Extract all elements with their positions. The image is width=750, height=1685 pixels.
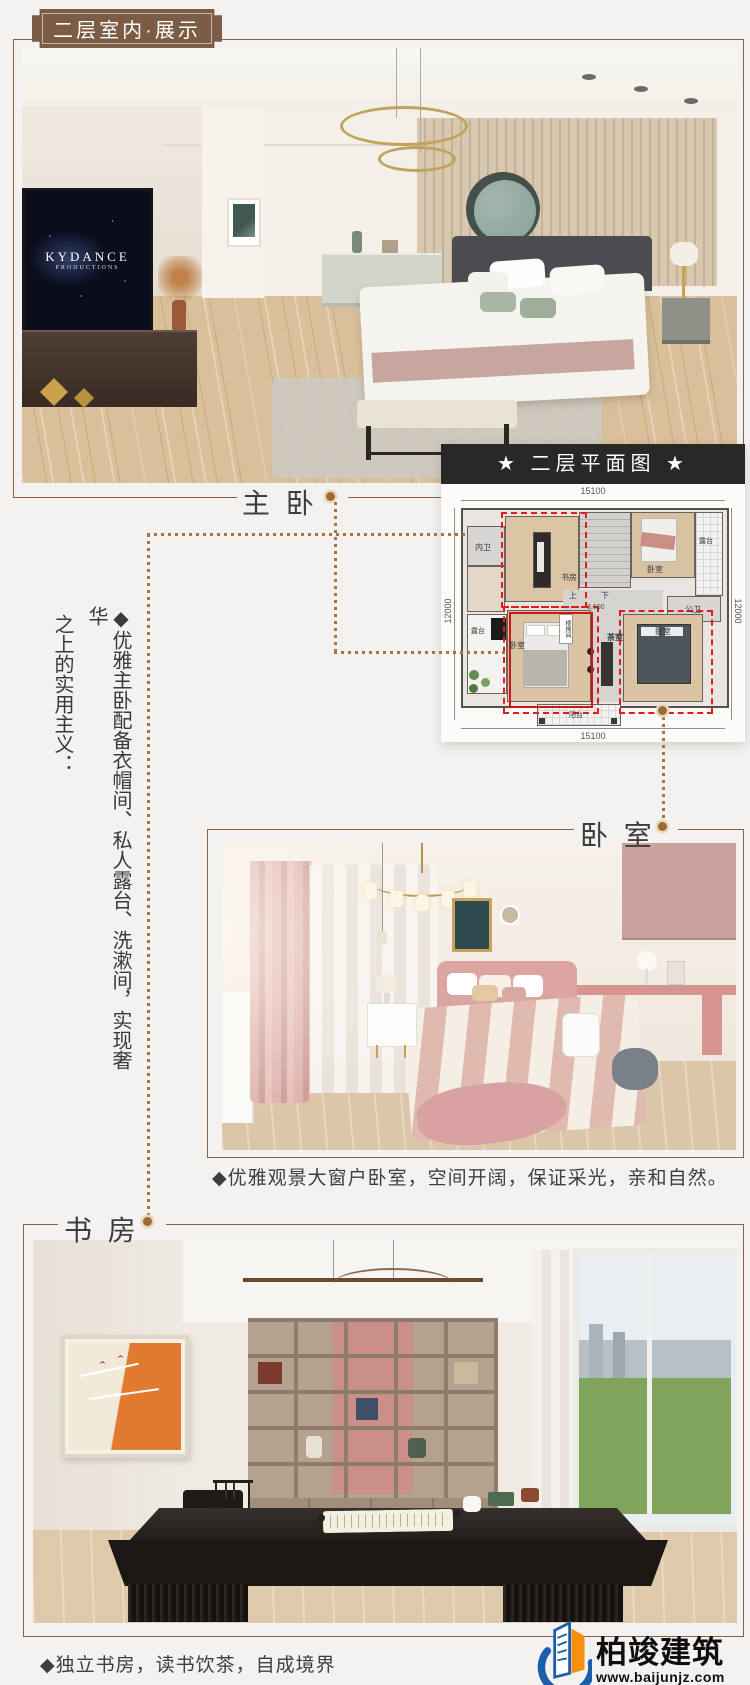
connector-study-horizontal (147, 533, 469, 536)
wall-art (452, 898, 492, 952)
shelving-unit (248, 1318, 498, 1498)
stair-down-label: 下 (601, 590, 609, 601)
wall-art-small (227, 198, 261, 247)
window-mullion (647, 1254, 652, 1514)
pendant-wire (382, 843, 383, 933)
window-tower (613, 1332, 625, 1378)
plant (481, 678, 490, 687)
connector-bedroom-vertical (662, 717, 665, 823)
light-wire (333, 1240, 334, 1278)
stairwell-tag: 楼梯间 (559, 614, 573, 644)
wall-art-canvas (233, 204, 255, 237)
pillow-sage (480, 292, 516, 312)
scroll-end (453, 1510, 461, 1518)
room-label-study: 书房 (561, 572, 577, 583)
dim-left: 12000 (443, 591, 453, 631)
stair-dim-label: 3,600 (587, 604, 605, 611)
room-label-master: 卧室 (509, 640, 525, 651)
side-note-line1: ◆优雅主卧配备衣帽间、私人露台、洗漱间，实现奢华 (84, 606, 132, 1086)
ceiling (22, 48, 737, 108)
connector-dot-bedroom (658, 822, 667, 831)
dim-right: 12000 (733, 591, 743, 631)
pouf (612, 1048, 658, 1090)
pillow-sage (520, 298, 556, 318)
side-note-line2: 之上的实用主义： (50, 614, 74, 814)
section-badge: 二层室内·展示 (32, 9, 222, 48)
scroll-end (317, 1514, 325, 1522)
hallway-left (467, 566, 505, 612)
master-frame-line-left (13, 497, 237, 498)
tea-box (488, 1492, 514, 1506)
shelf-vase (408, 1438, 426, 1458)
dried-flowers (158, 256, 202, 304)
desk-lamp-shade (637, 951, 657, 971)
pillow-gold (472, 985, 498, 1001)
round-mirror (474, 180, 536, 242)
desk-ornament (521, 1488, 539, 1502)
bedroom-frame-line-left (207, 829, 574, 830)
room-label-bed-top: 卧室 (647, 564, 663, 575)
floor-plan-panel: ★ 二层平面图 ★ 15100 12000 12000 15100 内卫 书房 (441, 444, 745, 742)
connector-dot-plan (658, 706, 667, 715)
lamp-shade (376, 975, 398, 993)
vanity-top (577, 985, 736, 995)
connector-dot-study (143, 1217, 152, 1226)
pillow (549, 264, 606, 296)
desk-lamp-stem (645, 969, 648, 985)
vanity-support (702, 995, 722, 1055)
master-bedroom-photo: KYDANCE PRODUCTIONS (22, 48, 737, 483)
sideboard-vase (352, 231, 362, 253)
chandelier-bulb (464, 881, 477, 897)
tea-pot (463, 1496, 481, 1512)
room-label-bed-right: 卧室 (655, 626, 671, 637)
lamp-stem (682, 262, 685, 298)
ring-chandelier (340, 106, 468, 146)
connector-master-horizontal (334, 651, 509, 654)
label-study: 书 房 (64, 1209, 140, 1249)
dim-right-line (731, 508, 732, 720)
chandelier-bulb (364, 883, 377, 899)
downlight (684, 98, 698, 104)
floor-plan-drawing: 内卫 书房 上 下 3,600 楼梯间 卧室 露台 公卫 (461, 508, 729, 708)
bedroom-frame-line-right (678, 829, 743, 830)
study-caption: ◆独立书房，读书饮茶，自成境界 (40, 1650, 336, 1677)
sideboard-decor (382, 240, 398, 253)
pink-cabinetry (622, 843, 736, 940)
dim-bottom: 15100 (441, 731, 745, 741)
brush-rack-post (215, 1480, 217, 1508)
study-frame-line-left (23, 1224, 58, 1225)
ring-chandelier-small (378, 146, 456, 172)
connector-dot-master (326, 492, 335, 501)
vase (172, 300, 186, 330)
company-logo: 柏竣建筑 www.baijunjz.com (536, 1612, 748, 1685)
terrace-left-label: 露台 (471, 626, 485, 636)
balcony-post (611, 718, 617, 724)
chandelier-arms (372, 869, 472, 897)
pendant-bulb (377, 931, 387, 945)
logo-icon (536, 1615, 592, 1685)
page: 二层室内·展示 KYDANCE PRODUCTIONS (0, 0, 750, 1685)
lamp-shade (670, 242, 698, 266)
bench-cushion (357, 400, 517, 428)
window-lawn (579, 1378, 731, 1514)
tv-text-line2: PRODUCTIONS (25, 265, 150, 271)
nightstand (367, 1003, 417, 1047)
plant (469, 684, 478, 693)
nightstand (662, 298, 710, 344)
calligraphy-scroll (323, 1509, 453, 1533)
chair-back (562, 1013, 600, 1057)
nightstand-leg (376, 1045, 378, 1058)
round-portrait (500, 905, 520, 925)
balcony-label: 阳台 (569, 710, 583, 720)
books (454, 1362, 478, 1384)
room-label-tea: 茶室 (607, 632, 623, 643)
brush (233, 1483, 235, 1499)
nightstand-leg (404, 1045, 406, 1058)
art-canvas (69, 1343, 181, 1450)
logo-text: 柏竣建筑 www.baijunjz.com (596, 1637, 725, 1685)
light-arc-wire (333, 1268, 453, 1300)
dim-top: 15100 (441, 486, 745, 496)
connector-study-vertical (147, 534, 150, 1222)
tea-table (601, 642, 613, 686)
room-label-inner-bath: 内卫 (475, 542, 491, 553)
bedroom-photo (222, 843, 736, 1150)
window-tower (589, 1324, 603, 1378)
chandelier-bulb (416, 895, 429, 911)
dim-left-line (454, 508, 455, 720)
window (573, 1248, 737, 1532)
terrace-right (695, 512, 723, 596)
terrace-right-label: 露台 (699, 536, 713, 546)
plant (469, 670, 479, 680)
room-label-public-bath: 公卫 (685, 604, 701, 615)
brush (225, 1483, 227, 1499)
connector-master-vertical (334, 502, 337, 654)
highlight-master-solid (509, 612, 593, 708)
desk-front (108, 1540, 668, 1586)
desk-cabinet-left (128, 1584, 248, 1622)
tv-screen: KYDANCE PRODUCTIONS (22, 188, 153, 344)
downlight (634, 86, 648, 92)
downlight (582, 74, 596, 80)
study-frame-line-right (166, 1224, 743, 1225)
bedroom-caption: ◆优雅观景大窗户卧室，空间开阔，保证采光，亲和自然。 (212, 1163, 742, 1190)
books (356, 1398, 378, 1420)
chandelier-bulb (390, 891, 403, 907)
label-bedroom: 卧 室 (580, 814, 656, 854)
stair-up-label: 上 (569, 590, 577, 601)
brush-rack-post (248, 1480, 250, 1508)
vanity-frame (667, 961, 685, 985)
logo-company-name: 柏竣建筑 (596, 1637, 725, 1669)
mountain-art (61, 1335, 189, 1458)
study-photo (33, 1240, 737, 1623)
floor-plan-title: ★ 二层平面图 ★ (441, 444, 745, 484)
tv-text-line1: KYDANCE (25, 249, 150, 265)
dim-top-line (461, 500, 725, 501)
shelf-vase (306, 1436, 322, 1458)
label-master-bedroom: 主 卧 (242, 482, 318, 522)
logo-website: www.baijunjz.com (596, 1669, 725, 1685)
balcony-post (539, 718, 545, 724)
badge-title: 二层室内·展示 (53, 14, 201, 43)
floor-plan-body: 15100 12000 12000 15100 内卫 书房 上 下 (441, 484, 745, 742)
dim-bottom-line (461, 728, 725, 729)
books (258, 1362, 282, 1384)
